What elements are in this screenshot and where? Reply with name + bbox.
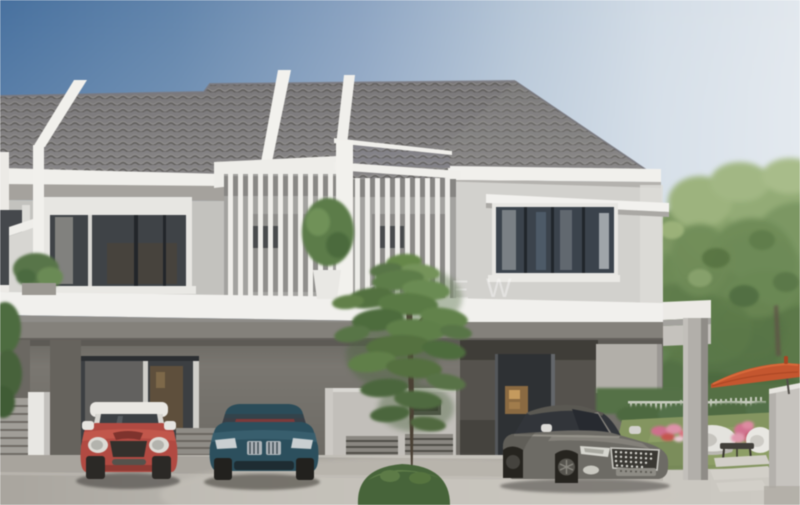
- svg-text:W: W: [486, 273, 512, 303]
